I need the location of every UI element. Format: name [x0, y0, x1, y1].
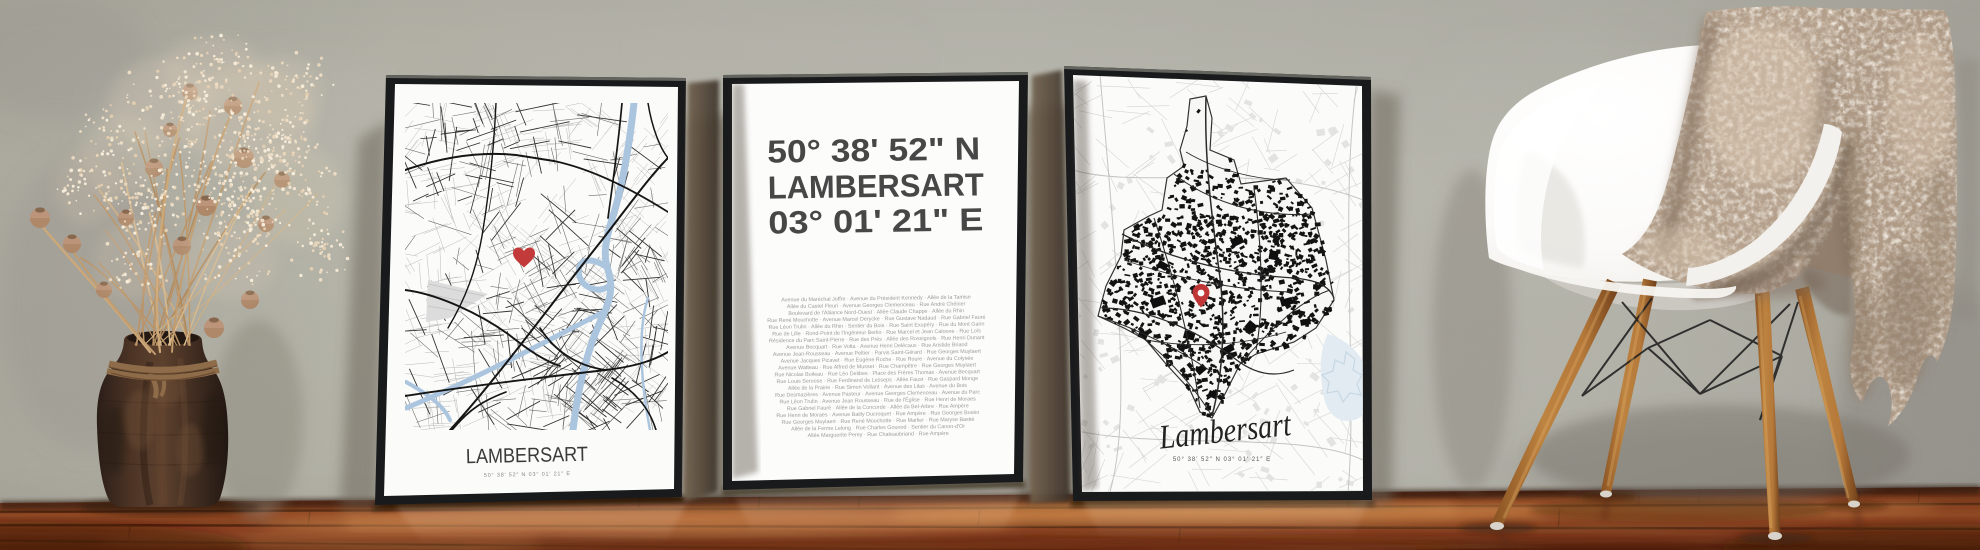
svg-text:LAMBERSART: LAMBERSART — [768, 166, 985, 205]
svg-text:03° 01' 21" E: 03° 01' 21" E — [768, 201, 984, 240]
svg-text:50° 38' 52" N: 50° 38' 52" N — [767, 130, 981, 169]
svg-text:LAMBERSART: LAMBERSART — [466, 443, 589, 469]
svg-text:50° 38′ 52″ N 03° 01′ 21″ E: 50° 38′ 52″ N 03° 01′ 21″ E — [1173, 457, 1271, 463]
